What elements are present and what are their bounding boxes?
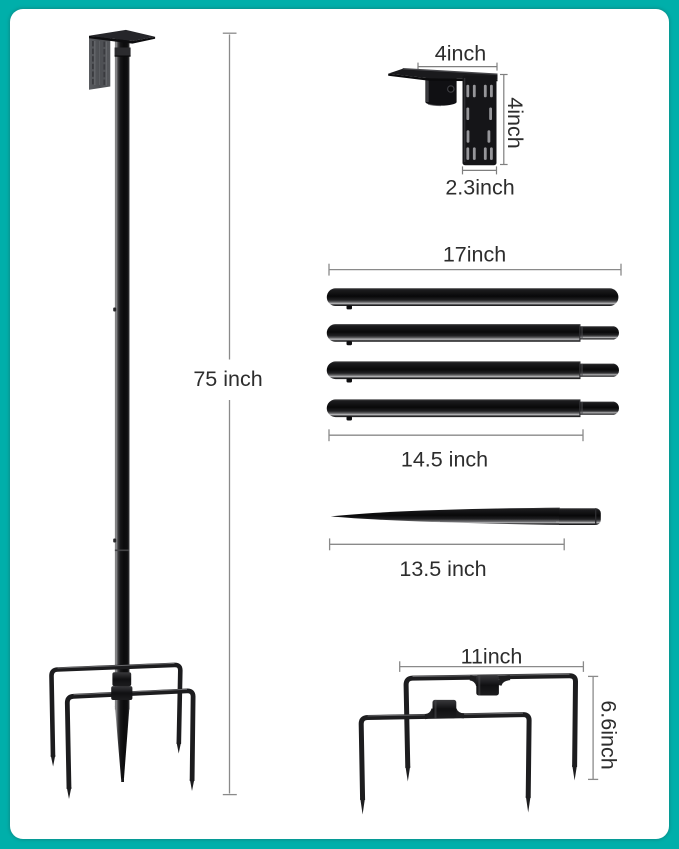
svg-text:6.6inch: 6.6inch [597,700,621,769]
svg-text:75 inch: 75 inch [193,367,262,391]
svg-text:14.5 inch: 14.5 inch [401,448,488,472]
svg-text:4inch: 4inch [435,42,486,66]
svg-text:11inch: 11inch [461,645,523,669]
svg-text:4inch: 4inch [503,97,527,148]
svg-text:13.5 inch: 13.5 inch [399,557,486,581]
svg-text:2.3inch: 2.3inch [445,176,514,200]
svg-text:17inch: 17inch [443,243,506,267]
